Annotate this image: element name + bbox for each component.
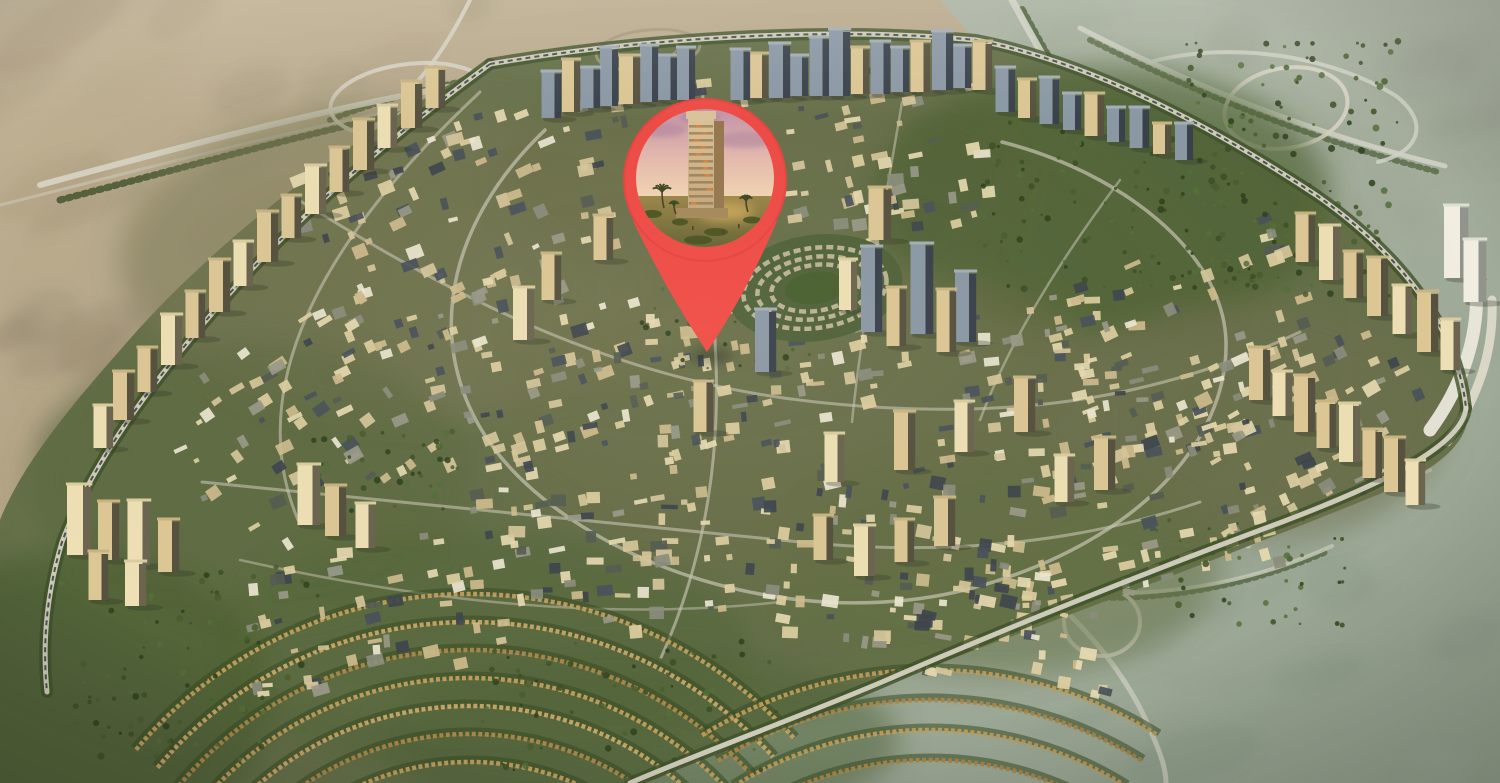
atmosphere-overlay	[0, 0, 1500, 783]
aerial-masterplan-view	[0, 0, 1500, 783]
aerial-scene	[0, 0, 1500, 783]
